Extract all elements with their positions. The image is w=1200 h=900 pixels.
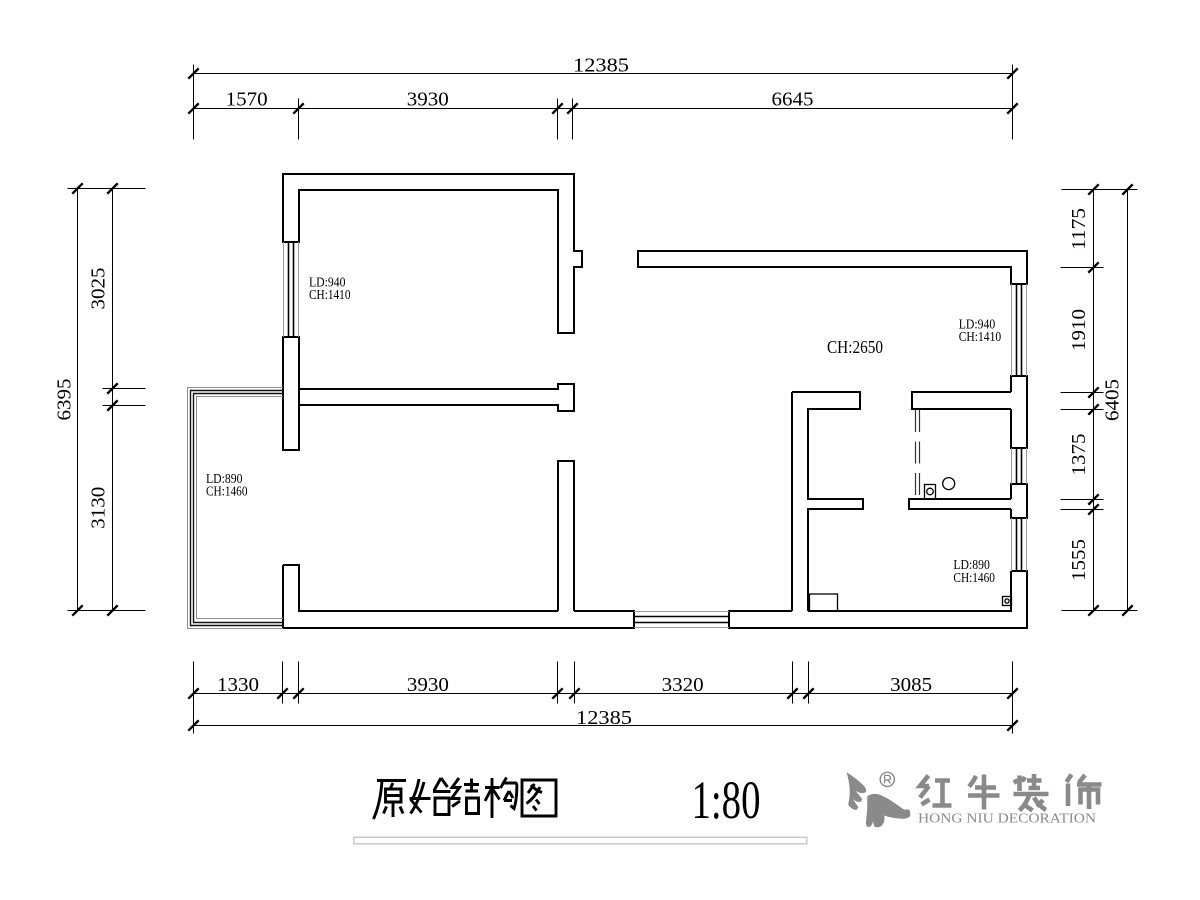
svg-text:1910: 1910 — [1068, 309, 1090, 351]
svg-text:6405: 6405 — [1102, 379, 1124, 421]
svg-text:CH:1410: CH:1410 — [309, 288, 351, 303]
svg-text:1570: 1570 — [226, 89, 268, 111]
svg-text:3085: 3085 — [890, 674, 932, 696]
svg-text:3320: 3320 — [662, 674, 704, 696]
svg-text:3130: 3130 — [88, 487, 110, 529]
svg-text:6645: 6645 — [772, 89, 814, 111]
svg-text:6395: 6395 — [54, 379, 76, 421]
svg-text:CH:1460: CH:1460 — [206, 485, 248, 500]
svg-text:CH:1410: CH:1410 — [959, 330, 1002, 345]
svg-text:CH:1460: CH:1460 — [953, 571, 995, 586]
svg-text:12385: 12385 — [573, 55, 629, 77]
svg-text:12385: 12385 — [576, 707, 632, 729]
svg-text:1555: 1555 — [1068, 539, 1090, 581]
svg-text:3930: 3930 — [407, 89, 449, 111]
svg-text:1:80: 1:80 — [692, 770, 761, 830]
svg-text:1330: 1330 — [217, 674, 259, 696]
svg-text:3025: 3025 — [88, 268, 110, 310]
svg-text:1375: 1375 — [1068, 434, 1090, 476]
svg-text:1175: 1175 — [1068, 208, 1090, 250]
svg-text:3930: 3930 — [407, 674, 449, 696]
svg-text:HONG NIU DECORATION: HONG NIU DECORATION — [918, 812, 1096, 827]
svg-text:CH:2650: CH:2650 — [827, 337, 883, 357]
